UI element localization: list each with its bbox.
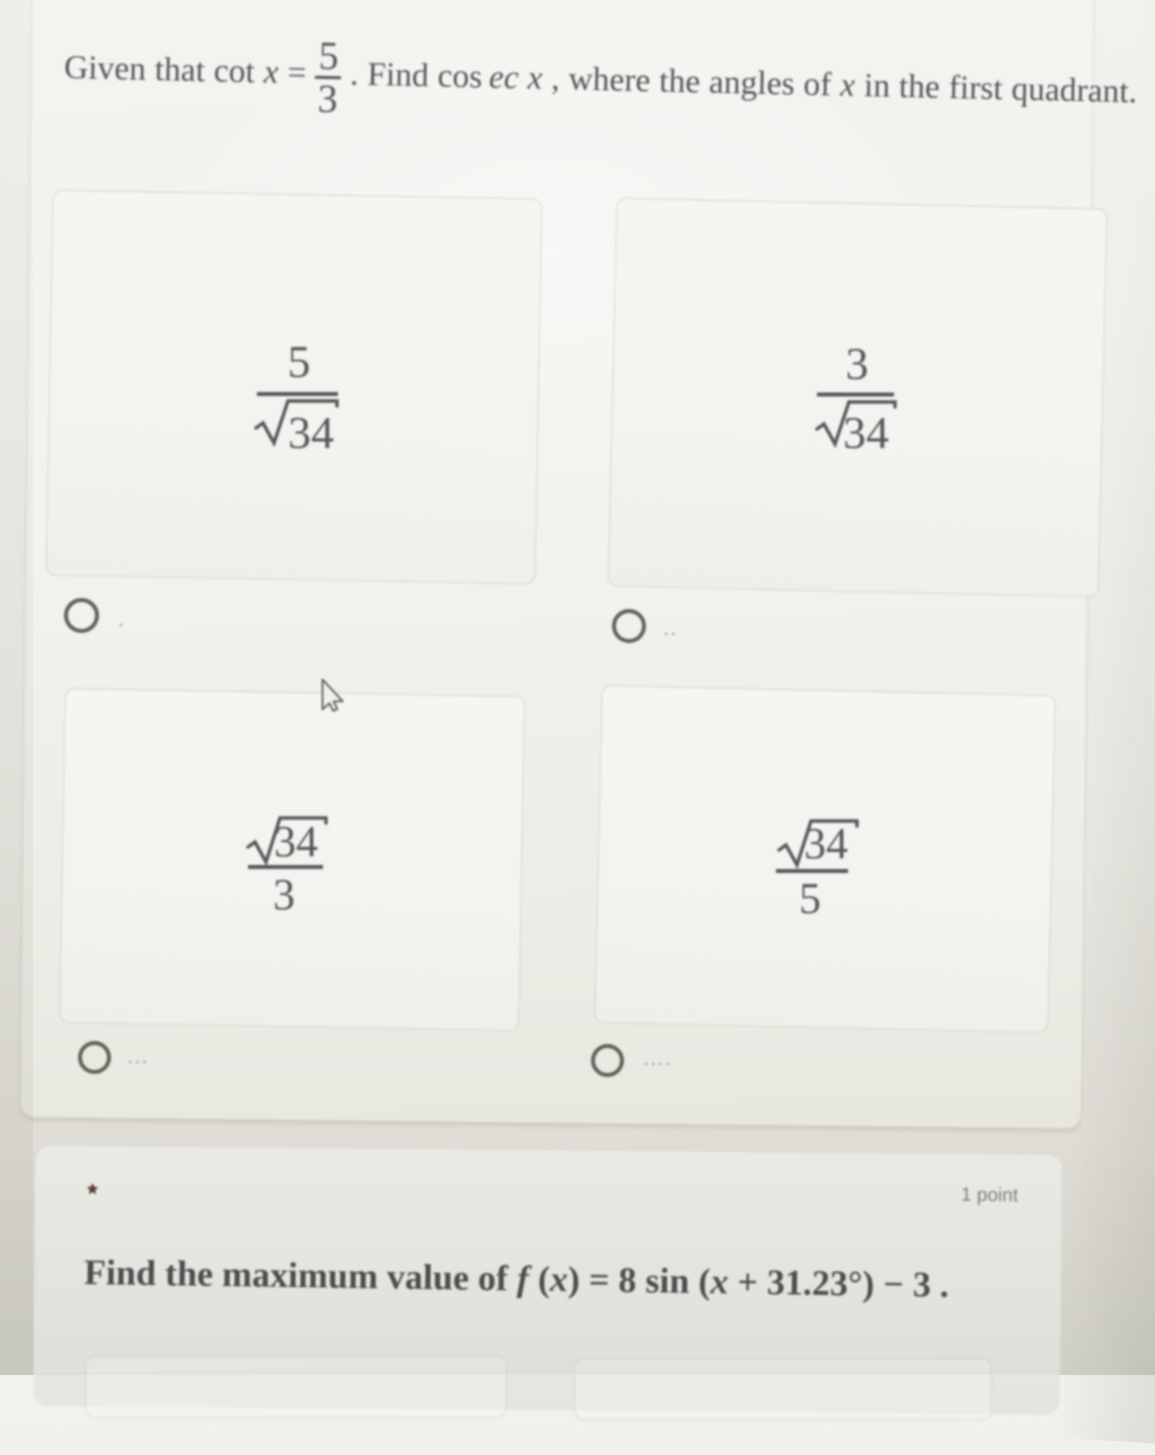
svg-text:5: 5: [799, 874, 821, 923]
svg-text:34: 34: [843, 407, 889, 458]
svg-text:34: 34: [274, 817, 318, 866]
svg-text:34: 34: [804, 819, 848, 868]
svg-text:3: 3: [846, 338, 869, 389]
svg-text:5: 5: [288, 336, 311, 387]
svg-text:34: 34: [288, 407, 334, 458]
svg-text:3: 3: [273, 870, 295, 919]
